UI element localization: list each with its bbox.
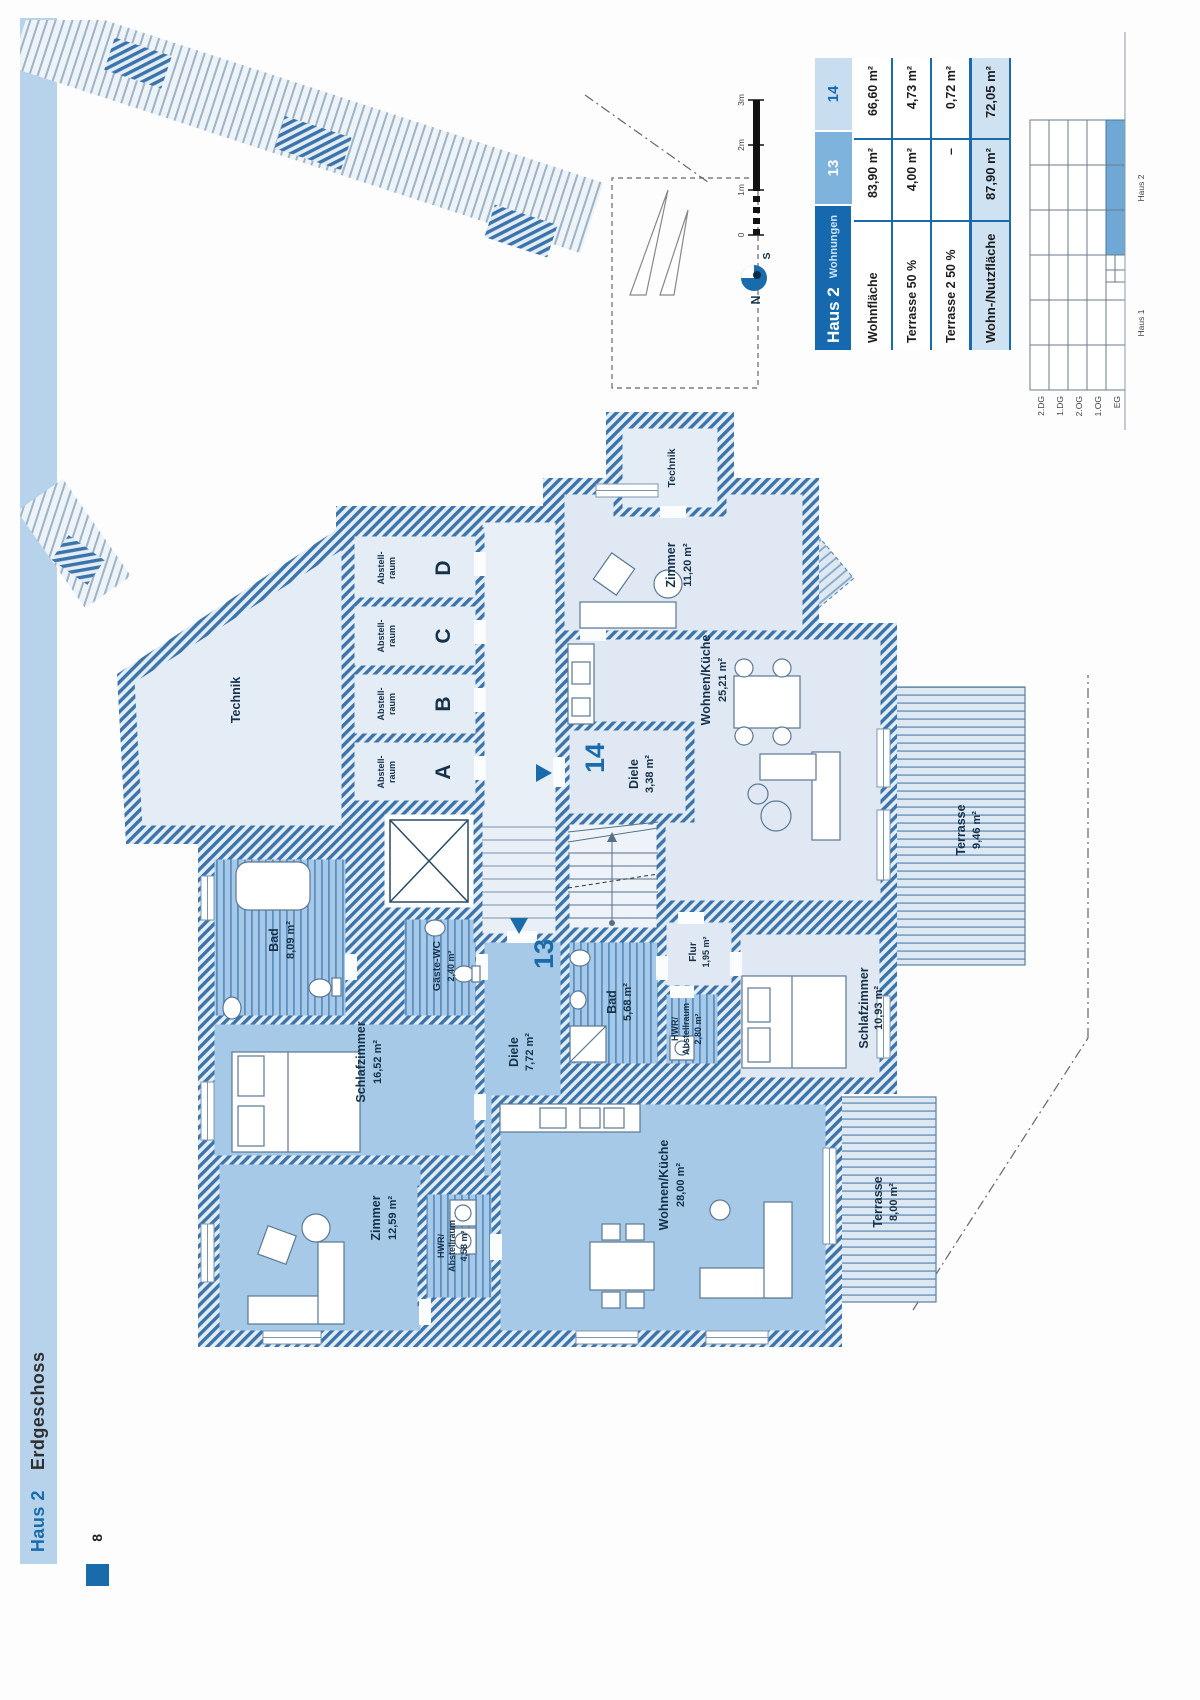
keyplan-haus2: Haus 2 [1136,174,1146,201]
row-value-13: 87,90 m² [972,140,1009,222]
area-hwr-13: 4,58 m² [459,1230,469,1261]
scale-2m: 2m [736,139,746,151]
label-abstellraum-d2: raum [387,557,397,579]
room-abstellraum-d [350,532,480,602]
area-diele-13: 7,72 m² [524,1033,536,1071]
sink [425,920,445,936]
table-row: Terrasse 50 % 4,00 m² 4,73 m² [893,58,932,350]
area-hwr-14: 2,80 m² [693,1013,703,1044]
label-technik: Technik [229,677,243,723]
label-abstellraum-a: A [432,764,455,779]
label-wohnen-14: Wohnen/Küche [699,635,713,726]
keyplan: 2.DG 1.DG 2.OG 1.OG EG Haus 1 Haus 2 [1030,32,1146,430]
label-hwr-13a: HWR/ [436,1234,446,1258]
table-row: Terrasse 2 50 % – 0,72 m² [932,58,971,350]
corridor-common [478,518,560,938]
elevator-icon [390,820,468,902]
apartment-number-14: 14 [580,743,610,773]
row-value-14: 0,72 m² [932,58,969,140]
floorplan-canvas: .rn{font:bold 12.5px "Liberation Sans",s… [20,20,1160,1680]
label-schlafzimmer-14: Schlafzimmer [857,967,871,1048]
sink [223,997,241,1019]
area-table-header: Haus 2 Wohnungen 13 14 [815,58,854,350]
row-label: Wohnfläche [854,222,891,350]
label-abstellraum-d1: Abstell- [376,551,386,584]
row-value-13: 4,00 m² [893,140,930,222]
terrace-apartment13 [838,1097,936,1302]
table-row: Wohnfläche 83,90 m² 66,60 m² [854,58,893,350]
label-wohnen-13: Wohnen/Küche [657,1140,671,1231]
compass: N S [741,252,773,304]
area-diele-14: 3,38 m² [644,755,656,793]
label-gaeste-wc: Gäste-WC [431,941,443,992]
scale-3m: 3m [736,94,746,106]
side-table [302,1214,330,1242]
sofa [580,602,676,628]
scale-1m: 1m [736,184,746,196]
area-terrasse-13: 8,00 m² [888,1183,900,1221]
area-table: Haus 2 Wohnungen 13 14 Wohnfläche 83,90 … [815,58,1011,350]
area-bad-14: 5,68 m² [622,983,634,1021]
table-row-total: Wohn-/Nutzfläche 87,90 m² 72,05 m² [971,58,1011,350]
label-diele-14: Diele [627,759,641,789]
bathtub [236,862,310,910]
table-subtitle: Wohnungen [828,215,840,278]
label-schlafzimmer-13: Schlafzimmer [354,1021,368,1102]
area-wohnen-14: 25,21 m² [717,658,729,702]
area-schlafzimmer-14: 10,93 m² [873,986,885,1030]
table-col-14: 14 [815,58,852,132]
toilet [454,966,474,982]
label-hwr-14b: Abstellraum [681,1003,691,1055]
room-abstellraum-c [350,602,480,670]
apartment-number-13: 13 [529,939,559,969]
keyplan-floor-1dg: 1.DG [1055,396,1065,416]
row-value-14: 4,73 m² [893,58,930,140]
keyplan-floor-1og: 1.OG [1093,396,1103,416]
area-bad-13: 8,09 m² [285,921,297,959]
label-technik-14: Technik [666,448,678,487]
compass-north: N [749,295,763,304]
toilet [309,979,331,997]
label-flur-14: Flur [687,942,699,962]
dining-table [590,1242,654,1290]
table-col-13: 13 [815,132,852,206]
row-label: Terrasse 50 % [893,222,930,350]
room-abstellraum-b [350,670,480,738]
label-diele-13: Diele [507,1037,521,1067]
label-abstellraum-c1: Abstell- [376,619,386,652]
area-wohnen-13: 28,00 m² [675,1163,687,1207]
label-abstellraum-d: D [432,560,455,575]
scale-0: 0 [736,232,746,237]
label-abstellraum-a2: raum [387,761,397,783]
label-bad-13: Bad [267,928,281,952]
row-value-13: – [932,140,969,222]
compass-south: S [761,252,773,259]
keyplan-haus1: Haus 1 [1136,309,1146,336]
label-abstellraum-b: B [432,696,455,711]
label-terrasse-13: Terrasse [871,1176,885,1227]
area-zimmer-13: 12,59 m² [387,1196,399,1240]
room-abstellraum-a [350,738,480,805]
area-terrasse-14: 9,46 m² [971,811,983,849]
scale-bar: 0 1m 2m 3m [736,94,764,237]
row-value-14: 72,05 m² [972,58,1009,140]
area-flur-14: 1,95 m² [701,936,711,967]
label-abstellraum-b2: raum [387,693,397,715]
area-zimmer-14: 11,20 m² [682,543,694,587]
sink [570,991,586,1009]
row-label: Wohn-/Nutzfläche [972,222,1009,350]
label-terrasse-14: Terrasse [954,804,968,855]
label-hwr-14a: HWR/ [670,1017,680,1041]
area-gaeste-wc: 2,40 m² [446,950,456,981]
toilet [570,950,590,966]
area-schlafzimmer-13: 16,52 m² [372,1040,384,1084]
row-label: Terrasse 2 50 % [932,222,969,350]
keyplan-floor-2og: 2.OG [1074,396,1084,416]
label-abstellraum-b1: Abstell- [376,687,386,720]
label-bad-14: Bad [605,990,619,1014]
label-zimmer-13: Zimmer [369,1195,383,1240]
label-abstellraum-c2: raum [387,625,397,647]
label-abstellraum-a1: Abstell- [376,755,386,788]
table-title: Haus 2 [824,287,844,343]
keyplan-floor-2dg: 2.DG [1036,396,1046,416]
row-value-14: 66,60 m² [854,58,891,140]
label-hwr-13b: Abstellraum [447,1220,457,1272]
label-zimmer-14: Zimmer [664,542,678,587]
keyplan-floor-eg: EG [1112,396,1122,408]
row-value-13: 83,90 m² [854,140,891,222]
dining-table [734,676,800,728]
label-abstellraum-c: C [432,628,455,643]
keyplan-highlight-eg-haus2 [1106,120,1125,255]
